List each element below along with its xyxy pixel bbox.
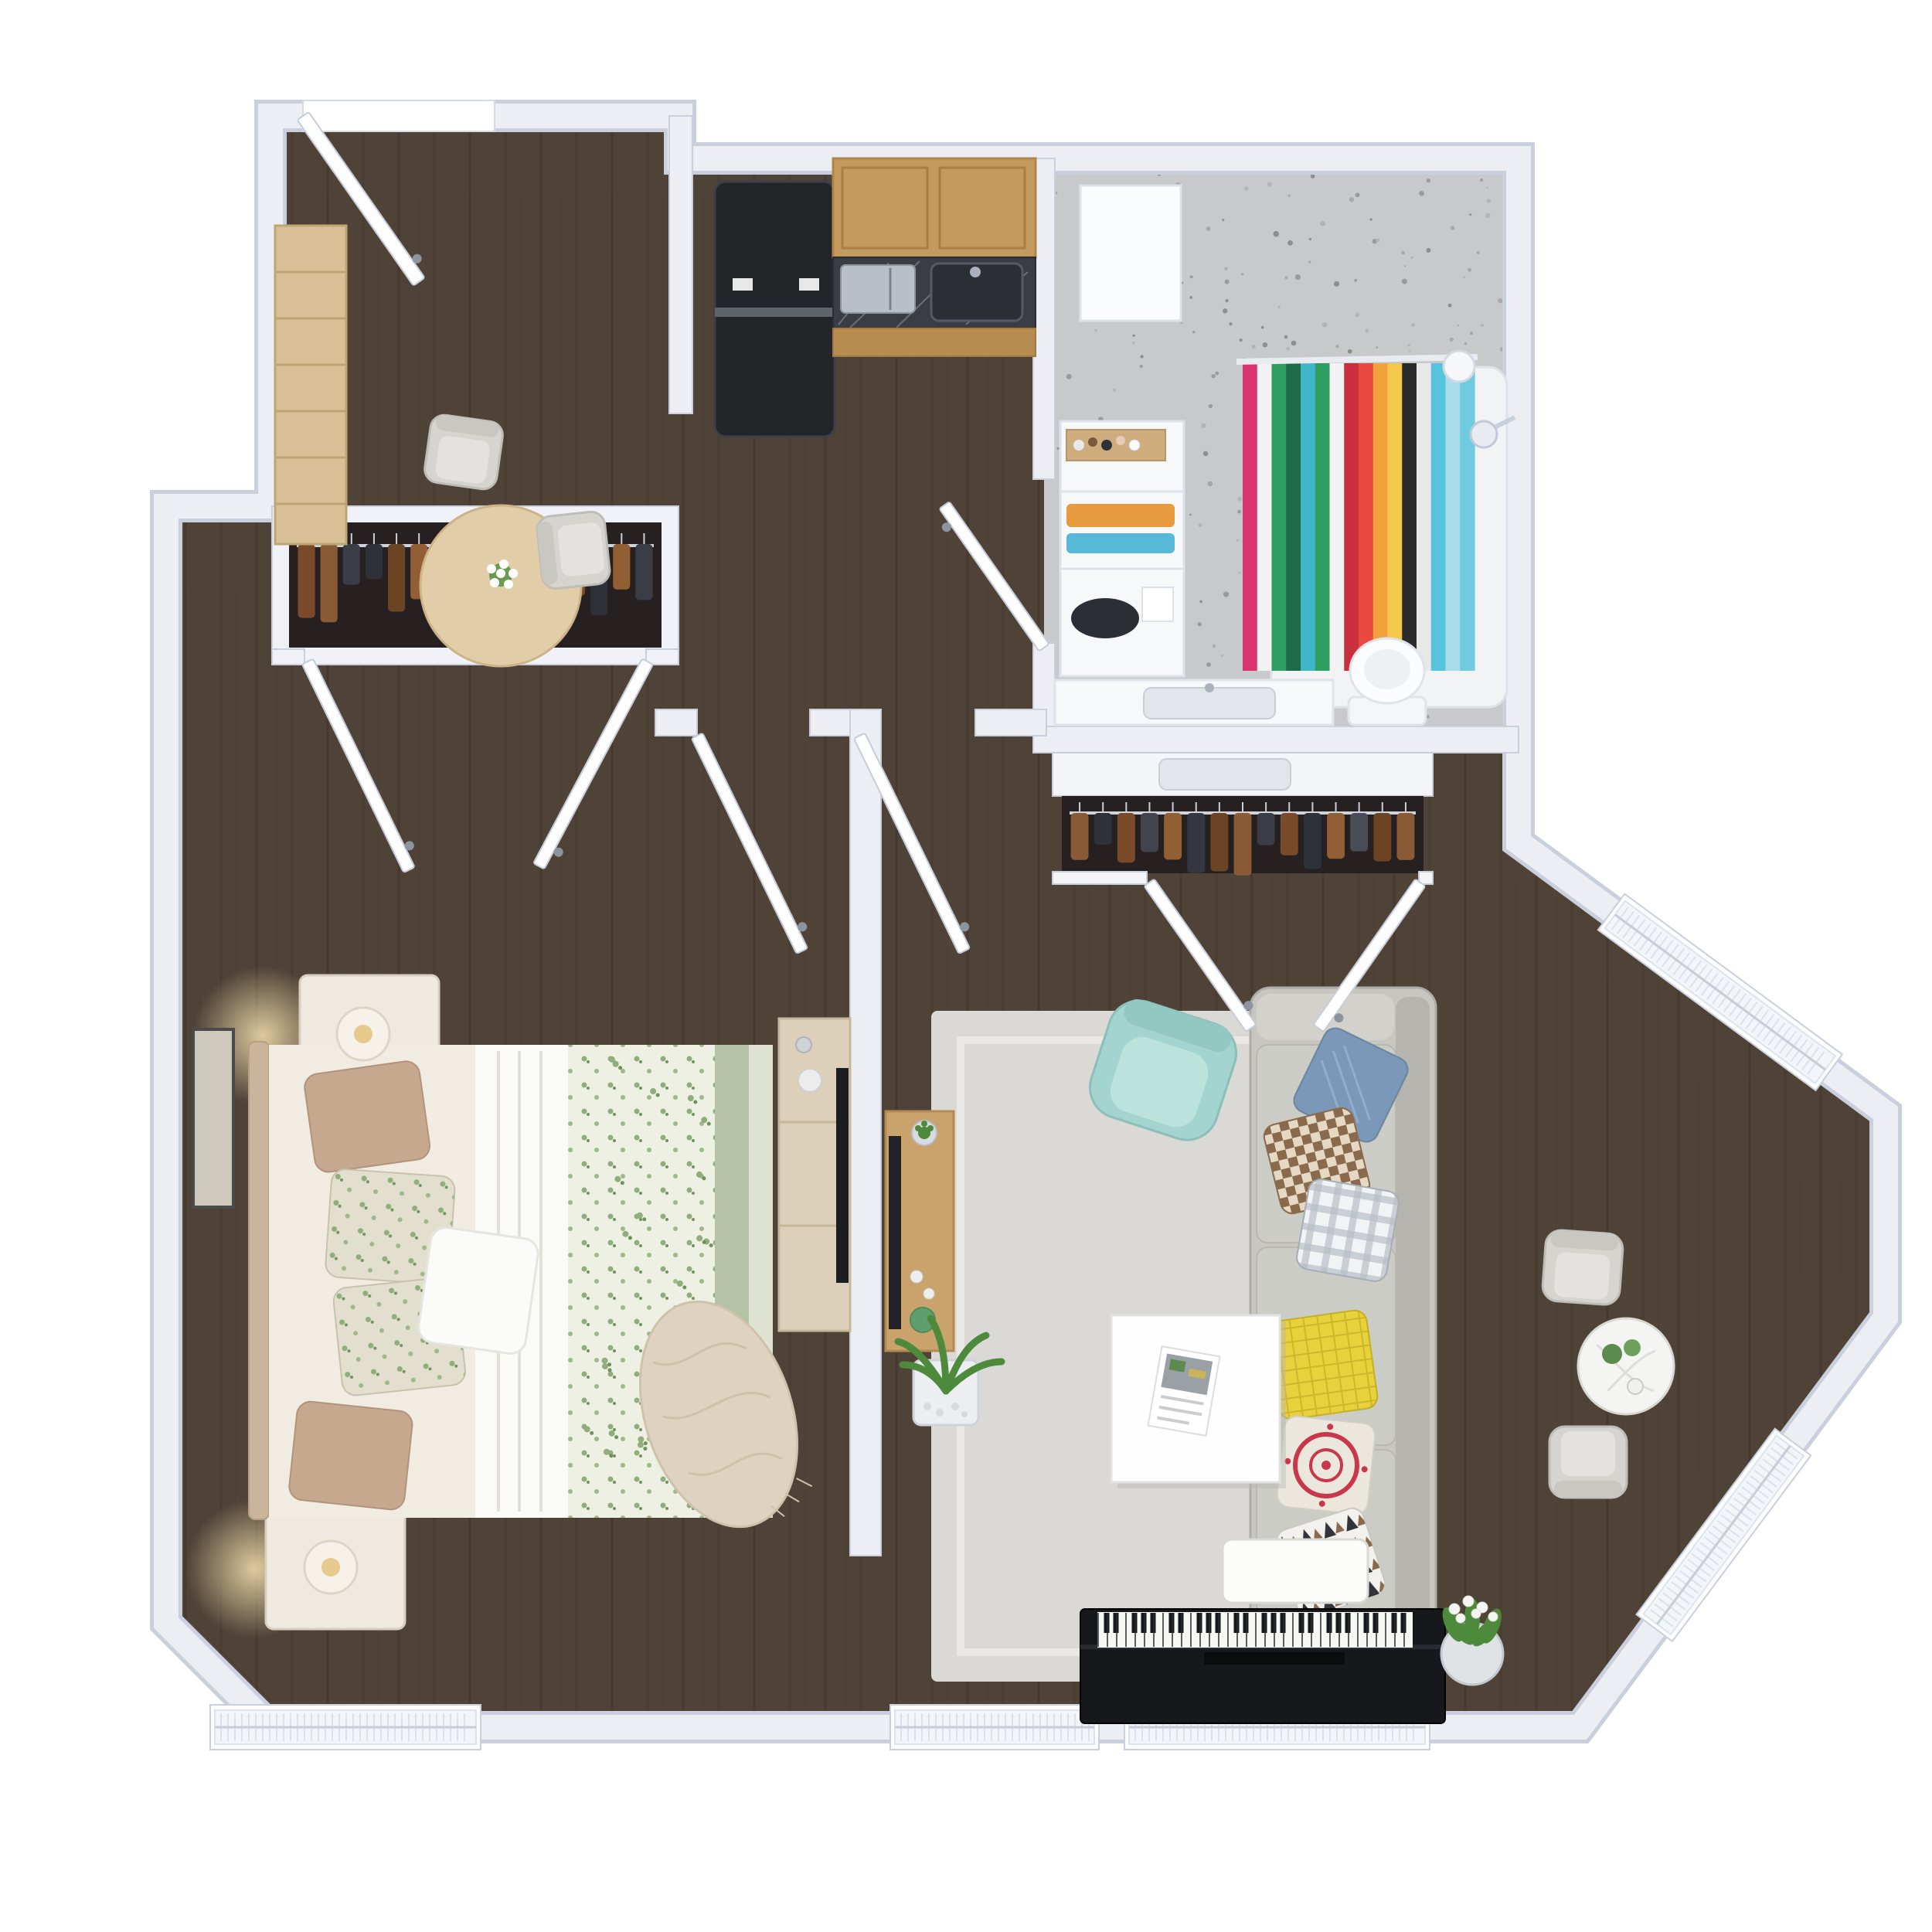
terrazzo-speck xyxy=(1451,226,1455,230)
terrazzo-speck xyxy=(1376,346,1378,349)
terrazzo-speck xyxy=(1295,274,1301,280)
terrazzo-speck xyxy=(1237,497,1242,502)
terrazzo-speck xyxy=(1222,219,1224,221)
duvet-sprig xyxy=(607,1368,611,1372)
terrazzo-speck xyxy=(1407,344,1410,346)
duvet-sprig xyxy=(621,1181,624,1185)
terrazzo-speck xyxy=(1252,345,1256,349)
double-bed xyxy=(249,1042,825,1549)
duvet-sprig xyxy=(604,1449,610,1455)
terrazzo-speck xyxy=(1141,355,1144,358)
bedroom-tv xyxy=(836,1068,849,1283)
duvet-sprig xyxy=(644,1441,648,1445)
terrazzo-speck xyxy=(1291,341,1297,346)
garment xyxy=(298,544,315,618)
terrazzo-speck xyxy=(1401,251,1405,255)
medicine-cabinet xyxy=(1080,185,1181,321)
closet-jamb xyxy=(1053,872,1147,884)
terrazzo-speck xyxy=(1419,191,1424,196)
folded-towels xyxy=(1142,587,1173,621)
black-key xyxy=(1132,1613,1138,1633)
black-key xyxy=(1336,1613,1342,1633)
bedroom-window xyxy=(210,1705,481,1750)
upright-piano xyxy=(1080,1609,1445,1723)
curtain-stripe xyxy=(1460,363,1475,671)
garment xyxy=(1071,813,1089,860)
terrazzo-speck xyxy=(1286,347,1290,351)
garment xyxy=(321,544,338,622)
floor-plan-stage xyxy=(0,0,1932,1932)
duvet-sprig xyxy=(688,1095,694,1101)
closet-jamb xyxy=(272,649,304,665)
duvet-sprig xyxy=(709,1243,713,1247)
terrazzo-speck xyxy=(1448,304,1452,308)
fridge-magnet xyxy=(799,278,819,291)
black-key xyxy=(1271,1613,1277,1633)
lounge-chair xyxy=(1549,1427,1627,1498)
terrazzo-speck xyxy=(1376,238,1380,242)
duvet-sprig xyxy=(638,1442,644,1448)
terrazzo-speck xyxy=(1426,248,1430,253)
black-key xyxy=(1141,1613,1147,1633)
terrazzo-speck xyxy=(1349,197,1354,202)
terrazzo-speck xyxy=(1221,655,1223,657)
garment xyxy=(1094,813,1112,845)
tulip-plant xyxy=(1438,1596,1505,1685)
curtain-stripe xyxy=(1388,363,1403,671)
lower-cabinets xyxy=(833,328,1036,356)
faucet xyxy=(1205,683,1214,692)
garment xyxy=(1234,813,1252,876)
black-key xyxy=(1345,1613,1351,1633)
toilet-seat xyxy=(1364,649,1410,689)
bottle xyxy=(1101,440,1112,451)
terrazzo-speck xyxy=(1209,404,1213,408)
terrazzo-speck xyxy=(1189,513,1192,515)
terrazzo-speck xyxy=(1288,195,1291,197)
garment xyxy=(635,544,652,600)
terrazzo-speck xyxy=(1223,308,1227,313)
terrazzo-speck xyxy=(1261,326,1264,329)
bottle xyxy=(1073,440,1084,451)
black-key xyxy=(1243,1613,1249,1633)
hall-window xyxy=(890,1705,1099,1750)
terrazzo-speck xyxy=(1215,372,1219,376)
curtain-stripe xyxy=(1272,363,1287,671)
curtain-stripe xyxy=(1446,363,1461,671)
terrazzo-speck xyxy=(1369,218,1372,220)
shower-head-icon xyxy=(1471,421,1497,447)
plate xyxy=(798,1069,821,1092)
duvet-sprig xyxy=(656,1094,660,1097)
dining-chair xyxy=(423,413,504,491)
black-key xyxy=(1151,1613,1156,1633)
bottle xyxy=(1129,440,1140,451)
bottle xyxy=(1116,436,1125,445)
terrazzo-speck xyxy=(1206,226,1211,231)
terrazzo-speck xyxy=(1244,186,1249,191)
black-key xyxy=(1401,1613,1406,1633)
terrazzo-speck xyxy=(1284,335,1287,338)
upper-cabinets xyxy=(833,158,1036,257)
garment xyxy=(1141,813,1158,852)
towel-blue xyxy=(1066,533,1175,553)
bistro-table xyxy=(1578,1318,1674,1414)
curtain-stripe xyxy=(1344,363,1359,671)
terrazzo-speck xyxy=(1223,591,1229,597)
medallion-pillow xyxy=(1276,1415,1376,1515)
black-key xyxy=(1169,1613,1175,1633)
counter-sink xyxy=(1159,759,1291,790)
terrazzo-speck xyxy=(1198,622,1202,626)
hat xyxy=(1071,598,1139,638)
terrazzo-speck xyxy=(1132,342,1135,345)
toilet xyxy=(1349,638,1426,725)
duvet-sprig xyxy=(638,1437,644,1443)
duvet-sprig xyxy=(637,1213,643,1219)
terrazzo-speck xyxy=(1094,329,1097,332)
duvet-sprig xyxy=(584,1426,590,1432)
duvet-sprig xyxy=(677,1281,683,1287)
garment xyxy=(366,544,383,579)
terrazzo-speck xyxy=(1411,323,1415,327)
terrazzo-speck xyxy=(1277,306,1280,308)
curtain-stripe xyxy=(1301,363,1315,671)
black-key xyxy=(1234,1613,1240,1633)
duvet-sprig xyxy=(622,1231,628,1237)
black-key xyxy=(1392,1613,1397,1633)
terrazzo-speck xyxy=(1322,322,1328,328)
terrazzo-speck xyxy=(1225,280,1230,284)
living-tv xyxy=(889,1136,901,1329)
closet-jamb xyxy=(646,649,679,665)
terrazzo-speck xyxy=(1238,572,1240,574)
bottle xyxy=(1088,437,1097,447)
terrazzo-speck xyxy=(1355,192,1360,197)
terrazzo-speck xyxy=(1229,322,1232,325)
terrazzo-speck xyxy=(1464,342,1468,345)
terrazzo-speck xyxy=(1273,231,1279,237)
tan-pillow xyxy=(303,1060,431,1174)
hall-wall-stub-mid xyxy=(810,709,853,736)
terrazzo-speck xyxy=(1140,365,1143,368)
terrazzo-speck xyxy=(1237,510,1241,514)
duvet-sprig xyxy=(590,1431,594,1435)
terrazzo-speck xyxy=(1334,281,1339,287)
duvet-sprig xyxy=(602,1358,608,1364)
terrazzo-speck xyxy=(1485,213,1491,219)
terrazzo-speck xyxy=(1203,451,1209,457)
wall-art xyxy=(193,1029,233,1207)
duvet-sprig xyxy=(643,1447,647,1451)
terrazzo-speck xyxy=(1263,342,1267,347)
black-key xyxy=(1216,1613,1221,1633)
terrazzo-speck xyxy=(1450,338,1454,342)
tan-pillow xyxy=(288,1400,414,1511)
garment xyxy=(1281,813,1298,855)
mini-plant xyxy=(1602,1344,1622,1364)
garment xyxy=(1350,813,1368,852)
terrazzo-speck xyxy=(1199,600,1202,604)
terrazzo-speck xyxy=(1225,299,1228,302)
bathroom-bottom-wall xyxy=(1033,726,1519,753)
headboard xyxy=(249,1042,269,1519)
duvet-sprig xyxy=(702,1176,706,1180)
tv-console xyxy=(886,1111,954,1351)
shower-curtain xyxy=(1243,363,1475,671)
terrazzo-speck xyxy=(1212,374,1216,378)
duvet-sprig xyxy=(609,1430,615,1437)
gingham-pillow xyxy=(1295,1178,1401,1284)
floor-plan-svg xyxy=(0,0,1932,1932)
garment xyxy=(1257,813,1275,845)
duvet-sprig xyxy=(609,1454,613,1458)
terrazzo-speck xyxy=(1487,199,1491,202)
black-key xyxy=(1114,1613,1119,1633)
terrazzo-speck xyxy=(1470,332,1473,335)
terrazzo-speck xyxy=(1480,179,1483,182)
music-rest xyxy=(1204,1652,1345,1665)
terrazzo-speck xyxy=(1348,349,1352,354)
terrazzo-speck xyxy=(1468,268,1471,272)
terrazzo-speck xyxy=(1208,481,1213,487)
coffee-table xyxy=(1111,1315,1286,1488)
terrazzo-speck xyxy=(1404,265,1406,267)
faucet xyxy=(970,267,981,277)
candle xyxy=(923,1288,934,1299)
duvet-sprig xyxy=(614,1176,621,1182)
curtain-stripe xyxy=(1431,363,1446,671)
curtain-stripe xyxy=(1257,363,1272,671)
white-pillow xyxy=(417,1226,540,1355)
terrazzo-speck xyxy=(1190,275,1193,278)
terrazzo-speck xyxy=(1224,267,1227,270)
terrazzo-speck xyxy=(1411,257,1413,259)
piano-bench xyxy=(1223,1539,1368,1603)
terrazzo-speck xyxy=(1487,187,1489,189)
terrazzo-speck xyxy=(1481,324,1484,327)
terrazzo-speck xyxy=(1113,389,1116,392)
dresser xyxy=(779,1019,850,1331)
curtain-stripe xyxy=(1243,363,1257,671)
garment xyxy=(1187,813,1205,873)
terrazzo-speck xyxy=(1133,335,1135,337)
black-key xyxy=(1206,1613,1212,1633)
duvet-sprig xyxy=(642,1217,646,1221)
terrazzo-speck xyxy=(1498,298,1502,303)
black-key xyxy=(1262,1613,1267,1633)
duvet-sprig xyxy=(614,1435,618,1439)
terrazzo-speck xyxy=(1457,325,1458,326)
terrazzo-speck xyxy=(1469,213,1471,216)
duvet-sprig xyxy=(696,1172,702,1178)
terrazzo-speck xyxy=(1241,273,1243,275)
garment xyxy=(1117,813,1135,862)
black-key xyxy=(1281,1613,1286,1633)
curtain-stripe xyxy=(1402,363,1417,671)
duvet-sprig xyxy=(701,1117,707,1123)
terrazzo-speck xyxy=(1056,447,1060,451)
duvet-sprig xyxy=(628,1236,632,1240)
duvet-sprig xyxy=(707,1122,711,1126)
black-key xyxy=(1299,1613,1304,1633)
duvet-sprig xyxy=(602,1363,608,1369)
towel-orange xyxy=(1066,504,1175,527)
garment xyxy=(1304,813,1321,869)
fridge-magnet xyxy=(733,278,753,291)
wall-light xyxy=(1444,351,1475,382)
terrazzo-speck xyxy=(1189,296,1192,299)
dining-kitchen-wall xyxy=(669,116,692,413)
terrazzo-speck xyxy=(1192,331,1195,333)
terrazzo-speck xyxy=(1308,260,1311,263)
curtain-stripe xyxy=(1330,363,1345,671)
curtain-stripe xyxy=(1286,363,1301,671)
terrazzo-speck xyxy=(1284,276,1287,279)
terrazzo-speck xyxy=(1365,329,1369,333)
duvet-sprig xyxy=(682,1285,686,1289)
terrazzo-speck xyxy=(1463,276,1465,278)
curtain-stripe xyxy=(1373,363,1388,671)
garment xyxy=(1327,813,1345,859)
cup xyxy=(796,1037,811,1053)
terrazzo-speck xyxy=(1320,221,1325,226)
duvet-sprig xyxy=(613,1061,619,1067)
terrazzo-speck xyxy=(1409,350,1410,352)
duvet-sprig xyxy=(693,1100,697,1104)
terrazzo-speck xyxy=(1477,251,1480,254)
hall-wall-stub-right xyxy=(975,709,1046,736)
shelf-unit xyxy=(1060,421,1184,676)
nightstand-lamp xyxy=(337,1008,389,1060)
garment xyxy=(1164,813,1182,859)
bookshelf xyxy=(275,226,346,544)
black-key xyxy=(1197,1613,1202,1633)
terrazzo-speck xyxy=(1354,279,1357,282)
garment xyxy=(343,544,360,585)
garment xyxy=(1373,813,1391,862)
black-key xyxy=(1364,1613,1369,1633)
terrazzo-speck xyxy=(1355,312,1359,317)
nightstand-lamp xyxy=(304,1541,357,1594)
sofa-back xyxy=(1396,997,1430,1692)
duvet-sprig xyxy=(618,1066,622,1070)
fridge-divider xyxy=(715,308,835,317)
terrazzo-speck xyxy=(1236,539,1239,542)
terrazzo-speck xyxy=(1206,662,1211,667)
terrazzo-speck xyxy=(1402,279,1407,284)
curtain-stripe xyxy=(1315,363,1330,671)
living-closet xyxy=(1053,753,1433,884)
terrazzo-speck xyxy=(1335,345,1338,348)
garment xyxy=(613,544,630,590)
garment xyxy=(388,544,405,612)
terrazzo-speck xyxy=(1066,374,1072,379)
hall-wall-stub-left xyxy=(655,709,697,736)
black-key xyxy=(1104,1613,1110,1633)
duvet-sprig xyxy=(702,1240,706,1244)
coffee-cup xyxy=(1628,1379,1643,1394)
black-key xyxy=(1179,1613,1184,1633)
terrazzo-speck xyxy=(1287,240,1293,246)
black-key xyxy=(1308,1613,1314,1633)
garment xyxy=(1210,813,1228,872)
lounge-chair xyxy=(1542,1230,1624,1306)
black-key xyxy=(1373,1613,1379,1633)
terrazzo-speck xyxy=(1199,523,1202,527)
mini-plant xyxy=(1624,1339,1641,1356)
curtain-stripe xyxy=(1417,363,1431,671)
duvet-sprig xyxy=(696,1235,702,1241)
candle xyxy=(910,1270,923,1283)
microwave xyxy=(841,265,915,313)
entry-doorway xyxy=(303,100,495,131)
duvet-sprig xyxy=(650,1088,656,1094)
black-key xyxy=(1327,1613,1332,1633)
bedroom-living-partition xyxy=(850,709,881,1556)
terrazzo-speck xyxy=(1267,182,1272,187)
terrazzo-speck xyxy=(1240,338,1243,342)
terrazzo-speck xyxy=(1311,174,1315,179)
curtain-stripe xyxy=(1359,363,1373,671)
garment xyxy=(1396,813,1414,860)
terrazzo-speck xyxy=(1201,423,1206,427)
dining-chair xyxy=(536,511,611,590)
terrazzo-speck xyxy=(1213,645,1216,648)
terrazzo-speck xyxy=(1427,179,1430,182)
terrazzo-speck xyxy=(1309,238,1311,240)
